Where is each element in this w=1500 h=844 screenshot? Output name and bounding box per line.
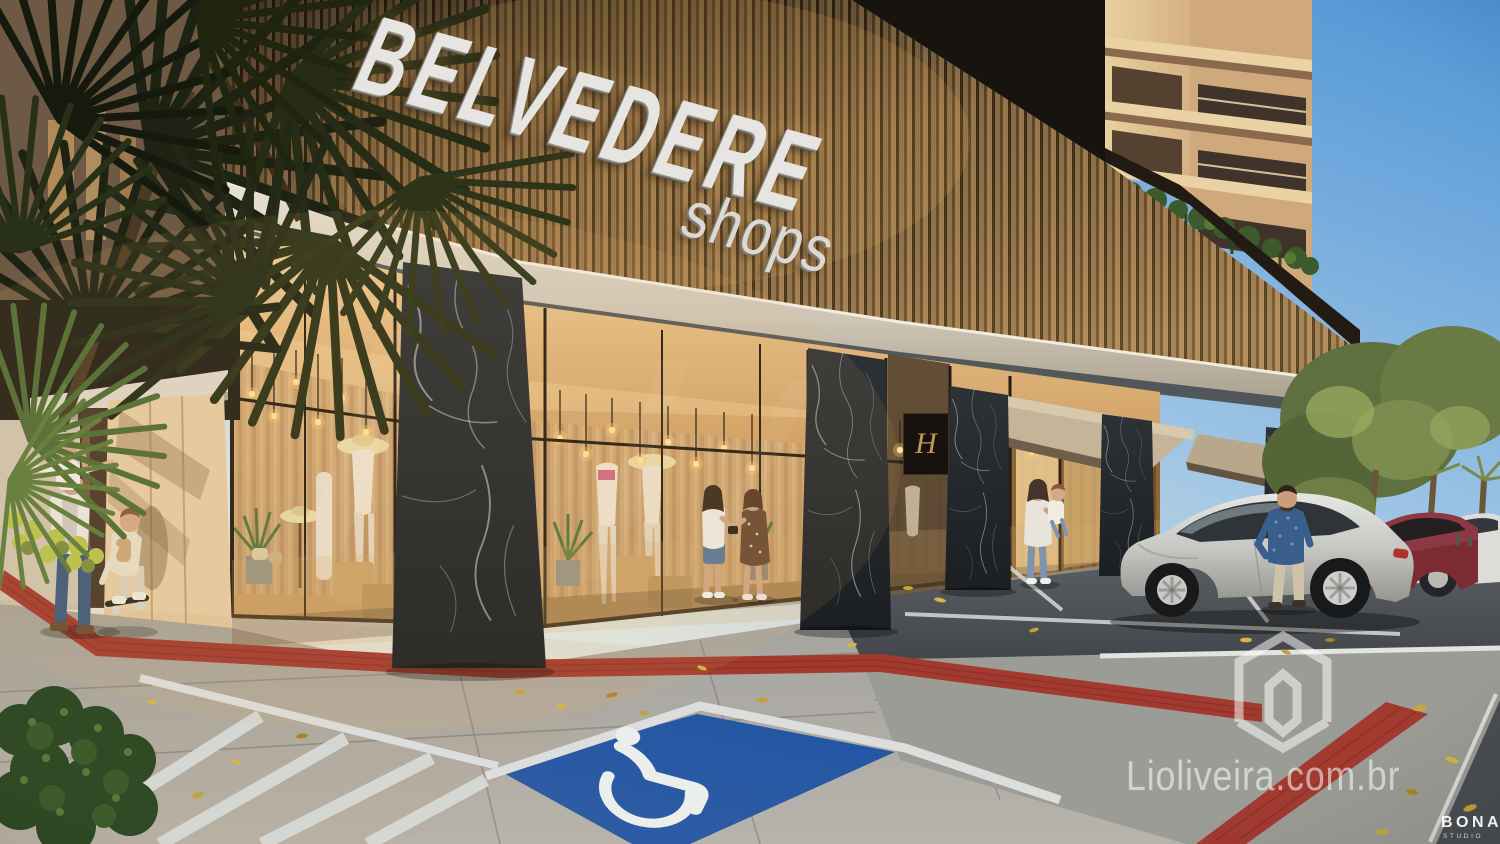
- architectural-rendering: BELVEDERE shops H Lioliveira.com.br BONA…: [0, 0, 1500, 844]
- watermark-site: Lioliveira.com.br: [1126, 752, 1400, 800]
- studio-credit-sub: STUDIO: [1443, 833, 1483, 840]
- boutique-letter: H: [915, 427, 937, 461]
- studio-credit: BONA: [1441, 814, 1500, 832]
- hexagon-house-logo: [1233, 630, 1333, 767]
- boutique-letter-sign: H: [903, 413, 949, 475]
